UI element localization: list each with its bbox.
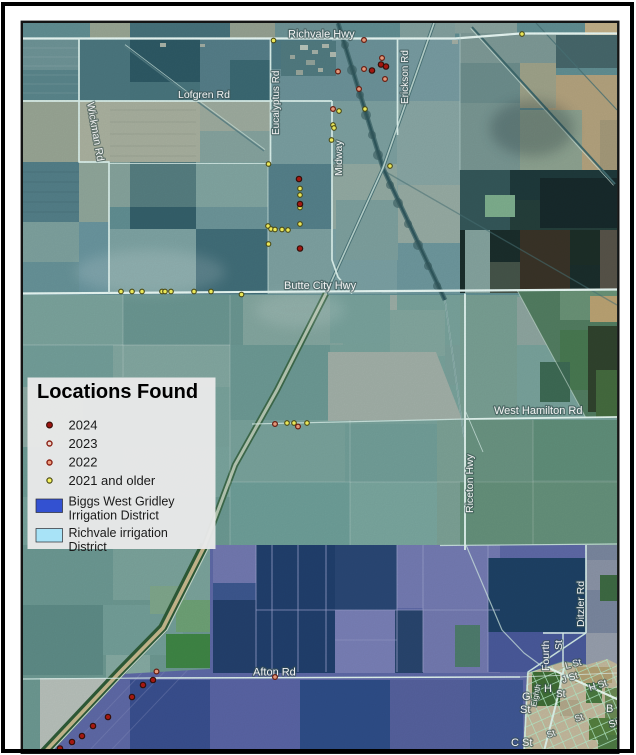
svg-text:Richvale irrigation: Richvale irrigation: [69, 526, 168, 540]
svg-text:2024: 2024: [69, 418, 98, 433]
svg-text:2022: 2022: [69, 455, 98, 470]
svg-text:Irrigation District: Irrigation District: [69, 509, 160, 523]
svg-text:District: District: [69, 540, 108, 554]
svg-text:2023: 2023: [69, 436, 98, 451]
svg-text:Biggs West Gridley: Biggs West Gridley: [69, 495, 176, 509]
svg-text:Locations Found: Locations Found: [37, 381, 198, 403]
svg-text:2021 and older: 2021 and older: [69, 473, 156, 488]
